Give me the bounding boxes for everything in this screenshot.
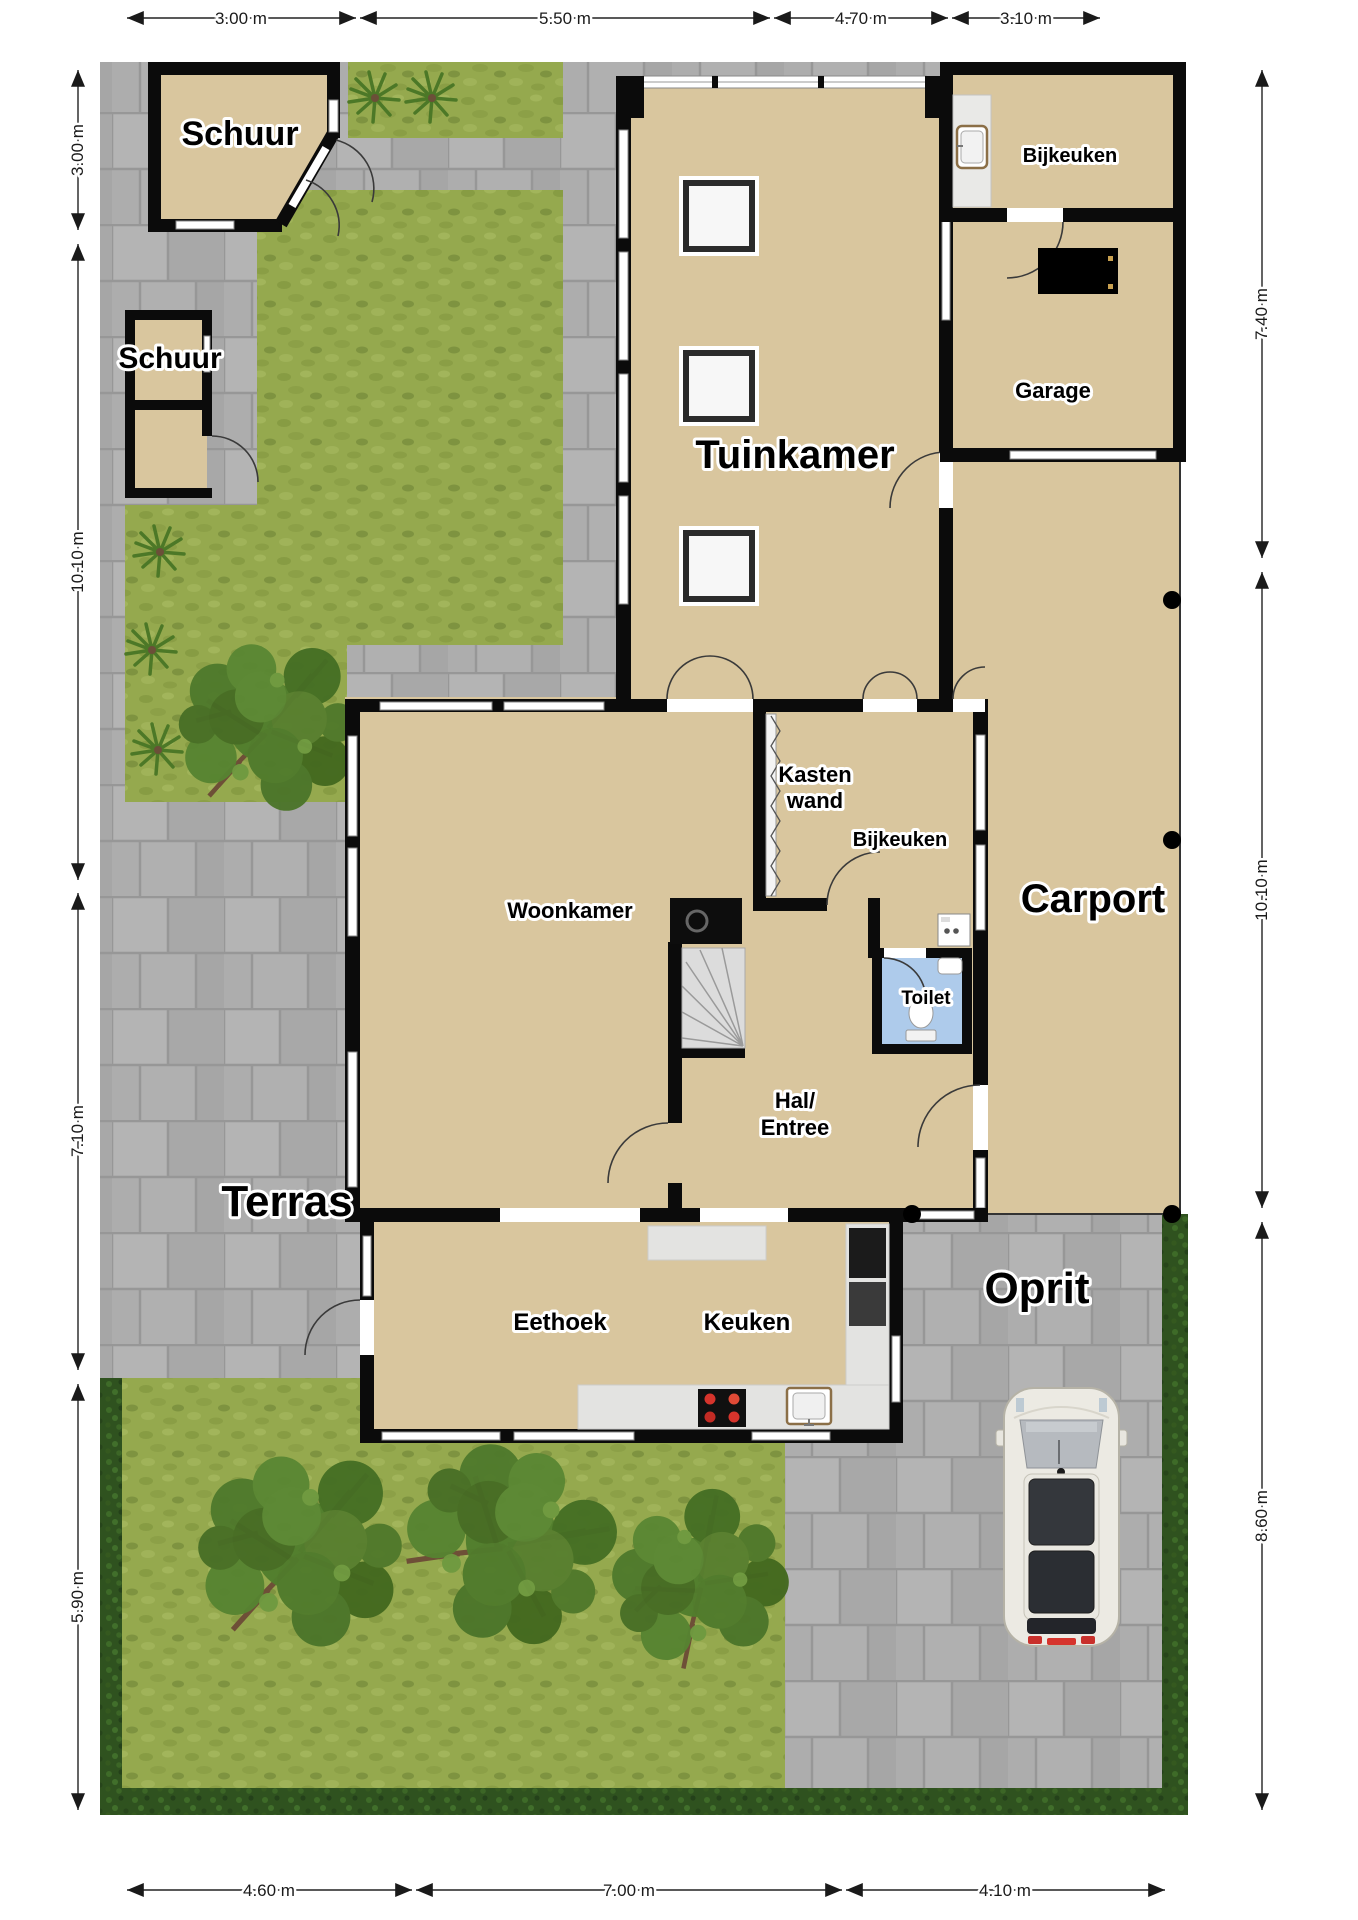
label-tuinkamer: Tuinkamer: [695, 433, 894, 477]
label-bijkeuken-top: Bijkeuken: [1023, 145, 1117, 167]
hedge-right: [1162, 1214, 1188, 1815]
dim-top-2: 4.70 m: [835, 9, 887, 28]
carport-post-icon: [1163, 831, 1181, 849]
label-hal-2: Entree: [761, 1115, 829, 1140]
hedge-bottom: [100, 1788, 1188, 1815]
label-kastenwand-1: Kasten: [778, 762, 851, 787]
label-bijkeuken: Bijkeuken: [853, 829, 947, 851]
dim-top-3: 3.10 m: [1000, 9, 1052, 28]
kitchen-sink-icon: [787, 1388, 831, 1425]
appliance-tower-icon: [849, 1228, 886, 1278]
room-tuinkamer-floor: [616, 76, 953, 712]
label-schuur-top: Schuur: [181, 115, 298, 153]
dim-left-0: 3.00 m: [68, 124, 87, 176]
label-eethoek: Eethoek: [513, 1309, 607, 1336]
carport-post-icon: [1163, 591, 1181, 609]
label-woonkamer: Woonkamer: [507, 898, 633, 923]
skylight-icon: [679, 526, 759, 606]
dim-top-1: 5.50 m: [539, 9, 591, 28]
utility-sink-icon: [953, 95, 991, 207]
label-hal-1: Hal/: [775, 1088, 815, 1113]
label-kastenwand-2: wand: [786, 788, 843, 813]
label-keuken: Keuken: [704, 1309, 791, 1336]
label-toilet: Toilet: [901, 988, 951, 1009]
carport-post-icon: [903, 1205, 921, 1223]
label-garage: Garage: [1015, 378, 1091, 403]
label-schuur-small: Schuur: [118, 342, 222, 375]
dim-bottom-1: 7.00 m: [603, 1881, 655, 1900]
dim-right-2: 8.60 m: [1252, 1490, 1271, 1542]
workbench-icon: [1038, 248, 1118, 294]
dim-right-0: 7.40 m: [1252, 288, 1271, 340]
toilet-sink-icon: [938, 958, 962, 974]
cooktop-icon: [698, 1389, 746, 1427]
dim-left-1: 10.10 m: [68, 531, 87, 592]
skylight-icon: [679, 176, 759, 256]
label-oprit: Oprit: [984, 1264, 1089, 1313]
skylight-icon: [679, 346, 759, 426]
dim-right-1: 10.10 m: [1252, 859, 1271, 920]
stairs: [682, 948, 745, 1048]
dim-bottom-0: 4.60 m: [243, 1881, 295, 1900]
hedge-left: [100, 1378, 122, 1815]
dim-left-2: 7.10 m: [68, 1105, 87, 1157]
label-terras: Terras: [221, 1177, 352, 1226]
appliance-tower-icon2: [849, 1282, 886, 1326]
floor-plan-page: Schuur Schuur Tuinkamer Bijkeuken Garage…: [0, 0, 1358, 1920]
dim-top-0: 3.00 m: [215, 9, 267, 28]
fireplace-icon: [670, 898, 742, 944]
skylights: [679, 176, 759, 606]
car-icon: [996, 1388, 1127, 1646]
dim-bottom-2: 4.10 m: [979, 1881, 1031, 1900]
label-carport: Carport: [1021, 877, 1165, 921]
dim-left-3: 5.90 m: [68, 1571, 87, 1623]
room-schuur-small-floor2: [130, 405, 207, 493]
floor-plan-drawing: Schuur Schuur Tuinkamer Bijkeuken Garage…: [0, 0, 1358, 1920]
washing-machine-icon: [938, 914, 970, 946]
carport-post-icon: [1163, 1205, 1181, 1223]
